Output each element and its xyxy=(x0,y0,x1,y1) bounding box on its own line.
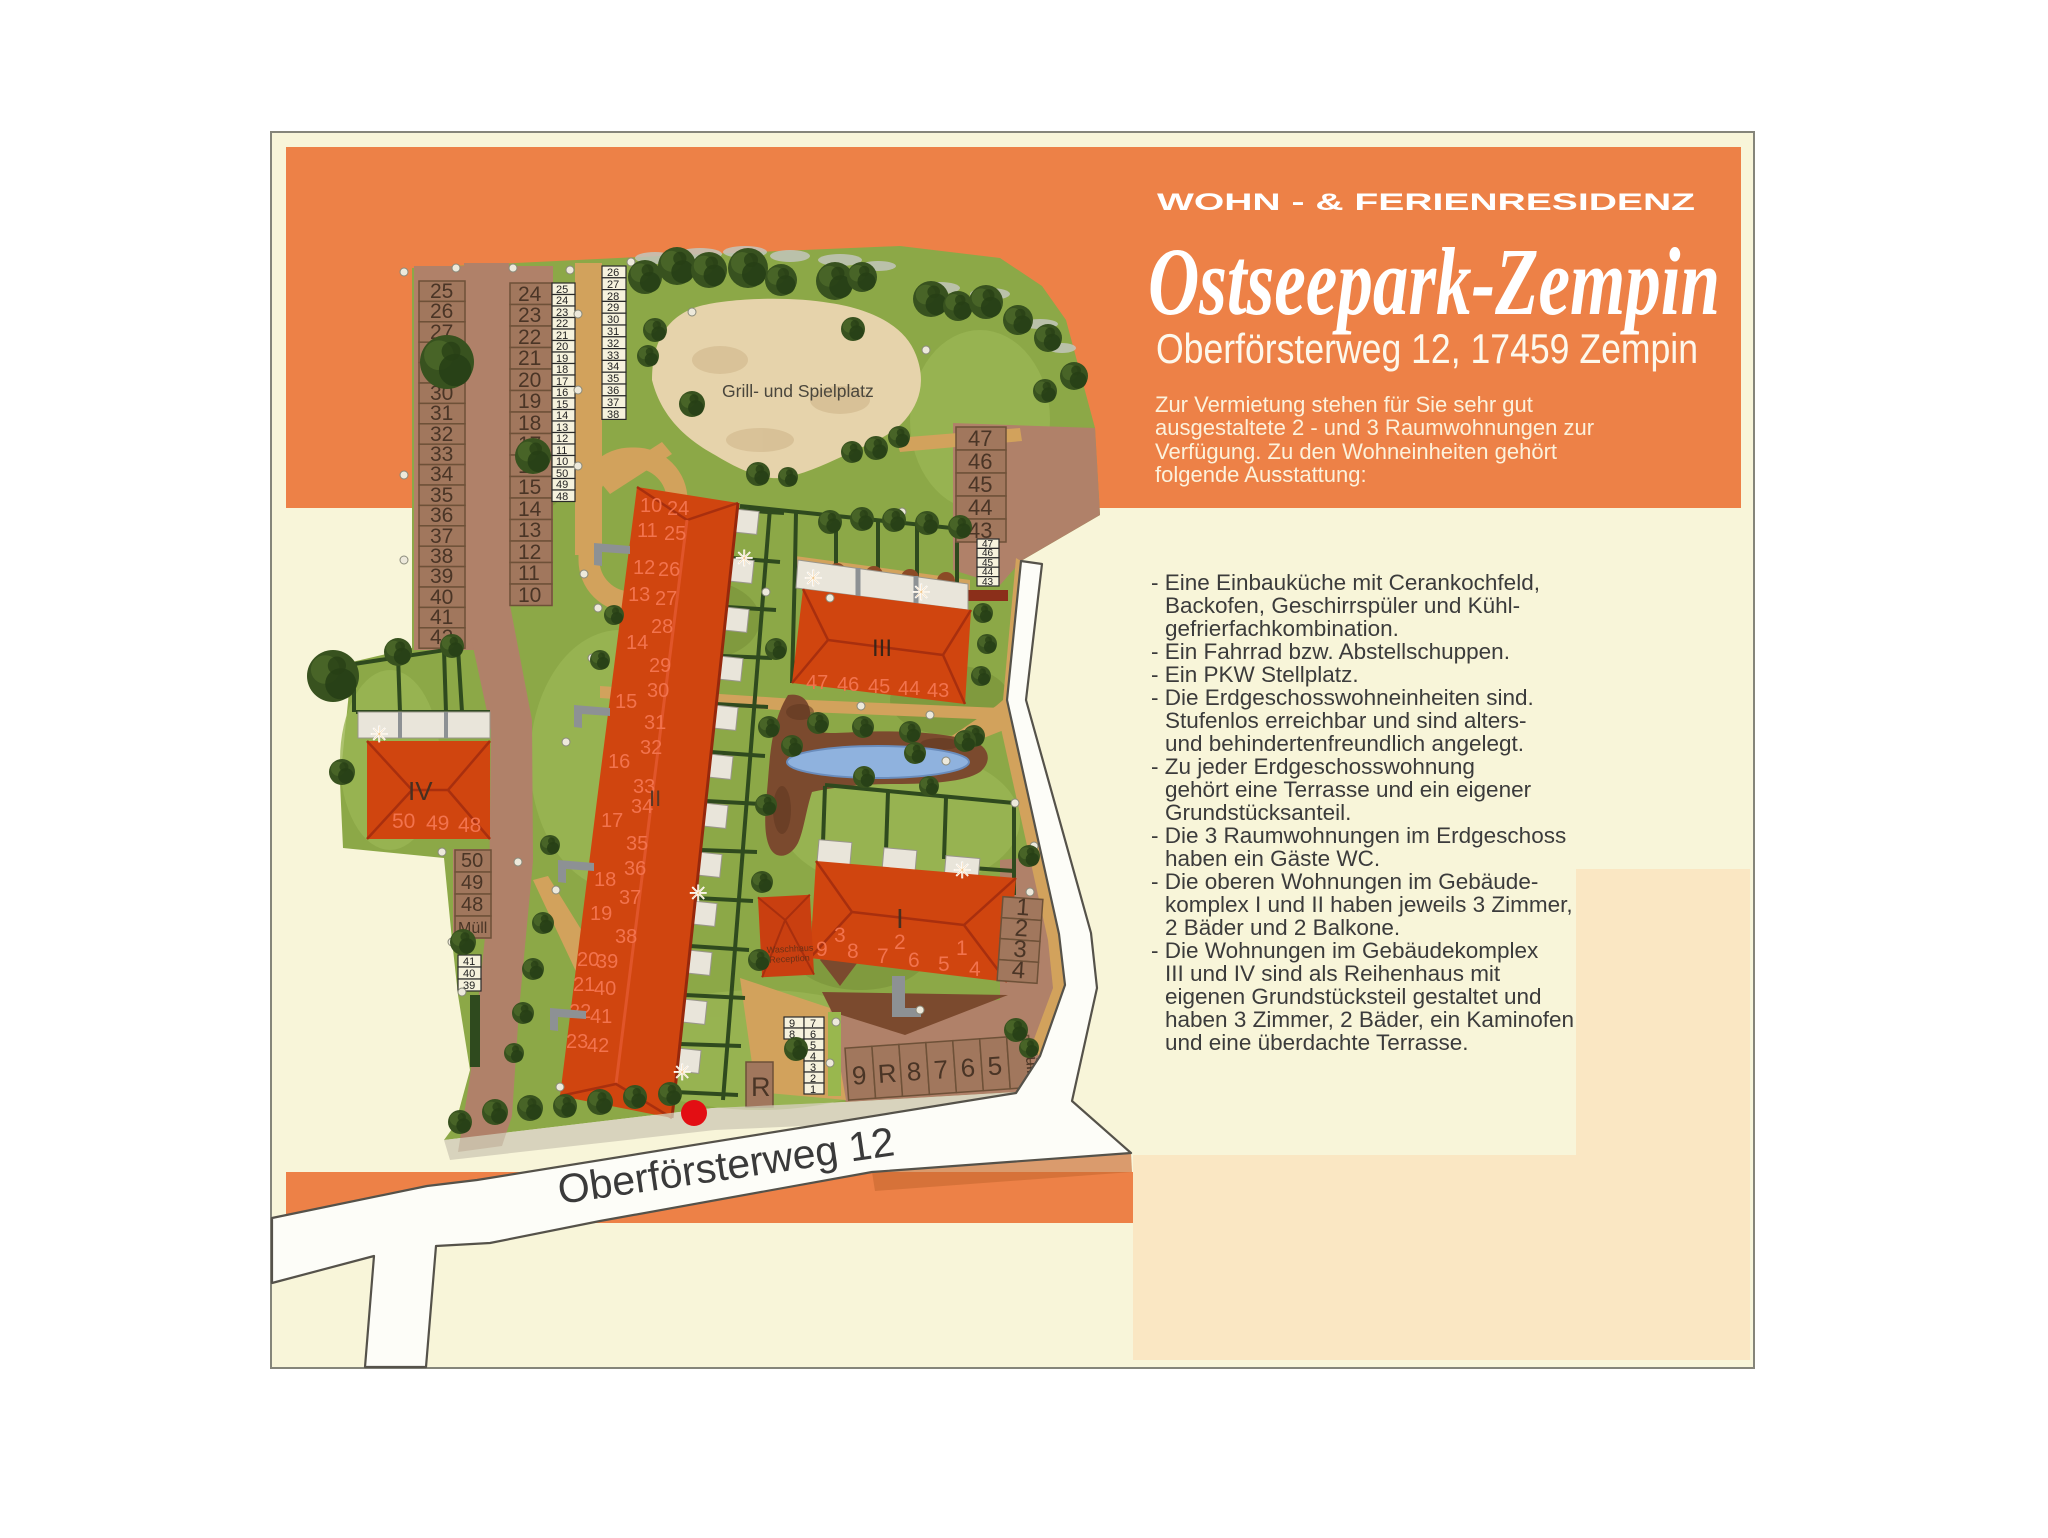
svg-text:50: 50 xyxy=(392,810,415,833)
svg-text:30: 30 xyxy=(607,314,619,326)
svg-text:35: 35 xyxy=(626,833,648,855)
svg-text:17: 17 xyxy=(601,810,623,832)
svg-text:48: 48 xyxy=(556,491,568,503)
svg-text:31: 31 xyxy=(430,402,453,425)
svg-text:2: 2 xyxy=(894,931,906,954)
svg-text:- Eine Einbauküche mit Ceranko: - Eine Einbauküche mit Cerankochfeld, xyxy=(1151,570,1540,595)
svg-text:✳: ✳ xyxy=(689,881,707,906)
svg-text:10: 10 xyxy=(518,584,541,607)
svg-text:und eine überdachte Terrasse.: und eine überdachte Terrasse. xyxy=(1165,1030,1469,1055)
svg-text:11: 11 xyxy=(518,562,540,585)
svg-text:Oberförsterweg 12, 17459 Zempi: Oberförsterweg 12, 17459 Zempin xyxy=(1156,325,1698,372)
svg-text:39: 39 xyxy=(596,951,618,973)
svg-text:43: 43 xyxy=(927,680,949,702)
svg-text:Ostseepark-Zempin: Ostseepark-Zempin xyxy=(1148,228,1720,335)
svg-text:11: 11 xyxy=(637,520,658,542)
svg-text:25: 25 xyxy=(664,523,686,545)
svg-text:14: 14 xyxy=(518,498,542,521)
svg-text:18: 18 xyxy=(594,869,616,891)
svg-text:29: 29 xyxy=(607,302,619,314)
svg-text:40: 40 xyxy=(594,978,616,1000)
svg-text:37: 37 xyxy=(619,887,641,909)
svg-text:folgende Ausstattung:: folgende Ausstattung: xyxy=(1155,462,1367,487)
svg-text:✳: ✳ xyxy=(735,546,753,571)
svg-text:19: 19 xyxy=(590,903,612,925)
svg-text:39: 39 xyxy=(430,565,453,588)
svg-text:20: 20 xyxy=(556,341,568,353)
svg-text:12: 12 xyxy=(518,541,541,564)
svg-text:12: 12 xyxy=(633,557,655,579)
svg-text:18: 18 xyxy=(556,364,568,376)
svg-text:II: II xyxy=(649,786,661,811)
svg-text:49: 49 xyxy=(461,872,483,894)
svg-text:50: 50 xyxy=(461,850,483,872)
svg-text:30: 30 xyxy=(647,680,669,702)
svg-text:21: 21 xyxy=(518,347,541,370)
svg-text:37: 37 xyxy=(607,397,619,409)
svg-text:15: 15 xyxy=(518,476,541,499)
svg-text:36: 36 xyxy=(624,858,646,880)
svg-text:41: 41 xyxy=(463,956,475,968)
svg-text:18: 18 xyxy=(518,412,541,435)
svg-text:IV: IV xyxy=(408,776,433,806)
svg-text:36: 36 xyxy=(607,385,619,397)
svg-text:10: 10 xyxy=(640,495,662,517)
svg-text:✳: ✳ xyxy=(804,566,822,591)
svg-text:4: 4 xyxy=(969,958,981,981)
svg-text:3: 3 xyxy=(834,924,846,947)
svg-text:WOHN - & FERIENRESIDENZ: WOHN - & FERIENRESIDENZ xyxy=(1157,189,1695,216)
svg-text:8: 8 xyxy=(847,940,859,963)
svg-text:45: 45 xyxy=(968,472,992,497)
svg-text:Grill- und Spielplatz: Grill- und Spielplatz xyxy=(722,381,874,401)
svg-text:49: 49 xyxy=(556,479,568,491)
svg-text:eigenen Grundstücksteil gestal: eigenen Grundstücksteil gestaltet und xyxy=(1165,984,1542,1009)
svg-text:32: 32 xyxy=(640,737,662,759)
svg-text:27: 27 xyxy=(655,588,677,610)
svg-text:10: 10 xyxy=(556,456,568,468)
svg-text:41: 41 xyxy=(590,1006,612,1028)
svg-text:24: 24 xyxy=(556,295,568,307)
svg-text:13: 13 xyxy=(628,584,650,606)
svg-text:43: 43 xyxy=(982,577,994,588)
svg-text:26: 26 xyxy=(430,300,453,323)
svg-text:R: R xyxy=(751,1072,771,1102)
svg-text:7: 7 xyxy=(933,1054,950,1085)
svg-text:4: 4 xyxy=(1011,957,1026,985)
svg-text:13: 13 xyxy=(518,519,541,542)
svg-text:45: 45 xyxy=(868,676,890,698)
svg-text:gehört eine Terrasse und ein e: gehört eine Terrasse und ein eigener xyxy=(1165,777,1532,802)
svg-text:2 Bäder und 2 Balkone.: 2 Bäder und 2 Balkone. xyxy=(1165,915,1400,940)
svg-text:16: 16 xyxy=(556,387,568,399)
svg-text:6: 6 xyxy=(908,949,920,972)
svg-text:27: 27 xyxy=(607,279,619,291)
svg-text:5: 5 xyxy=(938,953,950,976)
svg-text:9: 9 xyxy=(851,1060,868,1091)
svg-text:I: I xyxy=(896,903,904,934)
svg-text:24: 24 xyxy=(518,283,542,306)
svg-text:Backofen, Geschirrspüler und K: Backofen, Geschirrspüler und Kühl- xyxy=(1165,593,1520,618)
svg-text:46: 46 xyxy=(837,674,859,696)
svg-text:gefrierfachkombination.: gefrierfachkombination. xyxy=(1165,616,1399,641)
svg-text:21: 21 xyxy=(573,974,595,996)
svg-text:47: 47 xyxy=(968,426,992,451)
svg-text:28: 28 xyxy=(651,616,673,638)
svg-text:29: 29 xyxy=(649,655,671,677)
svg-text:Grundstücksanteil.: Grundstücksanteil. xyxy=(1165,800,1351,825)
svg-text:- Zu jeder Erdgeschosswohnung: - Zu jeder Erdgeschosswohnung xyxy=(1151,754,1475,779)
svg-text:- Die Wohnungen im Gebäudekomp: - Die Wohnungen im Gebäudekomplex xyxy=(1151,938,1539,963)
svg-text:8: 8 xyxy=(906,1056,923,1087)
svg-text:34: 34 xyxy=(607,361,619,373)
svg-text:15: 15 xyxy=(615,691,637,713)
svg-text:19: 19 xyxy=(518,390,541,413)
svg-text:R: R xyxy=(877,1058,898,1089)
svg-text:16: 16 xyxy=(608,751,630,773)
svg-text:Stufenlos erreichbar und sind: Stufenlos erreichbar und sind alters- xyxy=(1165,708,1526,733)
svg-text:49: 49 xyxy=(426,812,449,835)
svg-text:42: 42 xyxy=(587,1035,609,1057)
svg-text:40: 40 xyxy=(463,968,475,980)
svg-text:38: 38 xyxy=(607,409,619,421)
svg-text:haben ein Gäste WC.: haben ein Gäste WC. xyxy=(1165,846,1380,871)
svg-text:31: 31 xyxy=(644,712,666,734)
svg-text:47: 47 xyxy=(806,672,828,694)
svg-text:23: 23 xyxy=(518,304,541,327)
svg-text:5: 5 xyxy=(987,1050,1004,1081)
svg-text:14: 14 xyxy=(626,632,648,654)
svg-text:26: 26 xyxy=(607,267,619,279)
svg-text:- Ein Fahrrad bzw. Abstellschu: - Ein Fahrrad bzw. Abstellschuppen. xyxy=(1151,639,1510,664)
svg-text:44: 44 xyxy=(898,678,920,700)
svg-text:III und IV sind als Reihenhaus: III und IV sind als Reihenhaus mit xyxy=(1165,961,1501,986)
svg-text:Reception: Reception xyxy=(769,953,810,965)
svg-text:26: 26 xyxy=(658,559,680,581)
svg-text:✳: ✳ xyxy=(953,858,971,883)
svg-text:1: 1 xyxy=(810,1084,816,1096)
svg-text:44: 44 xyxy=(968,495,992,520)
svg-text:14: 14 xyxy=(556,410,568,422)
svg-text:38: 38 xyxy=(615,926,637,948)
svg-text:und behindertenfreundlich ange: und behindertenfreundlich angelegt. xyxy=(1165,731,1524,756)
svg-text:✳: ✳ xyxy=(673,1060,691,1085)
svg-text:- Ein PKW Stellplatz.: - Ein PKW Stellplatz. xyxy=(1151,662,1359,687)
svg-text:48: 48 xyxy=(458,814,481,837)
svg-text:24: 24 xyxy=(667,498,689,520)
svg-text:- Die oberen Wohnungen im Gebä: - Die oberen Wohnungen im Gebäude- xyxy=(1151,869,1538,894)
svg-text:- Die Erdgeschosswohneinheiten: - Die Erdgeschosswohneinheiten sind. xyxy=(1151,685,1534,710)
svg-text:32: 32 xyxy=(607,338,619,350)
svg-text:Verfügung. Zu den Wohneinheite: Verfügung. Zu den Wohneinheiten gehört xyxy=(1155,439,1557,464)
svg-text:- Die 3 Raumwohnungen im Erdge: - Die 3 Raumwohnungen im Erdgeschoss xyxy=(1151,823,1566,848)
svg-text:36: 36 xyxy=(430,504,453,527)
svg-text:ausgestaltete 2 - und 3 Raumwo: ausgestaltete 2 - und 3 Raumwohnungen zu… xyxy=(1155,415,1594,440)
svg-text:34: 34 xyxy=(430,463,454,486)
svg-text:20: 20 xyxy=(518,369,541,392)
svg-text:48: 48 xyxy=(461,894,483,916)
svg-text:1: 1 xyxy=(956,937,968,960)
svg-text:46: 46 xyxy=(968,449,992,474)
svg-text:✳: ✳ xyxy=(912,580,930,605)
svg-text:22: 22 xyxy=(556,318,568,330)
svg-text:6: 6 xyxy=(960,1052,977,1083)
svg-text:haben 3 Zimmer, 2 Bäder, ein K: haben 3 Zimmer, 2 Bäder, ein Kaminofen xyxy=(1165,1007,1574,1032)
svg-text:23: 23 xyxy=(566,1031,588,1053)
svg-text:35: 35 xyxy=(607,373,619,385)
svg-text:Zur Vermietung stehen für Sie: Zur Vermietung stehen für Sie sehr gut xyxy=(1155,392,1533,417)
svg-text:31: 31 xyxy=(607,326,619,338)
svg-text:III: III xyxy=(872,635,892,662)
svg-text:12: 12 xyxy=(556,433,568,445)
svg-text:22: 22 xyxy=(518,326,541,349)
svg-text:komplex I und II haben jeweils: komplex I und II haben jeweils 3 Zimmer, xyxy=(1165,892,1573,917)
svg-text:9: 9 xyxy=(816,938,828,961)
svg-text:7: 7 xyxy=(877,945,889,968)
svg-text:✳: ✳ xyxy=(370,722,388,747)
